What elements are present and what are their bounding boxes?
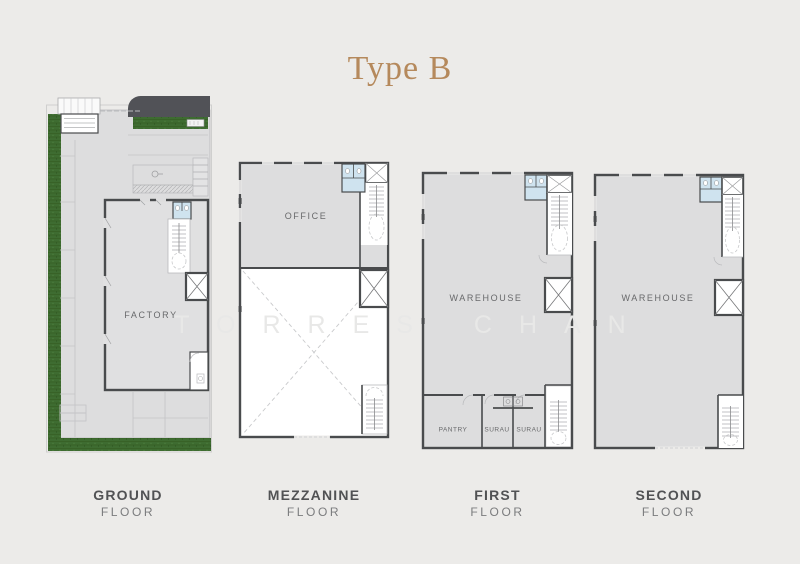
caption-second-floor: SECOND FLOOR: [595, 487, 743, 519]
caption-first-line2: FLOOR: [423, 505, 572, 519]
staircase-lower-icon: [547, 387, 571, 447]
room-label-pantry: PANTRY: [439, 427, 468, 434]
service-shaft-icon: [547, 175, 572, 193]
staircase-lower-icon: [718, 395, 743, 448]
room-label-factory: FACTORY: [124, 310, 177, 320]
toilet-icon: [173, 202, 191, 219]
lift-shaft-icon: [545, 278, 572, 312]
service-shaft-icon: [366, 163, 389, 183]
room-label-surau-right: SURAU: [516, 427, 541, 434]
caption-first-floor: FIRST FLOOR: [423, 487, 572, 519]
toilet-icon: [700, 177, 722, 202]
store-room: [190, 352, 208, 390]
caption-ground-line1: GROUND: [48, 487, 208, 503]
service-shaft-icon: [722, 177, 743, 195]
second-floor-plan: [591, 168, 749, 458]
caption-ground-line2: FLOOR: [48, 505, 208, 519]
mezzanine-floor-plan: [236, 156, 394, 446]
caption-second-line2: FLOOR: [595, 505, 743, 519]
caption-mezzanine-line1: MEZZANINE: [240, 487, 388, 503]
ground-floor-plan: [44, 90, 234, 462]
toilet-icon: [342, 164, 365, 192]
floorplan-sheet: Type B: [0, 0, 800, 564]
page-title: Type B: [0, 50, 800, 88]
room-label-warehouse-second: WAREHOUSE: [621, 293, 694, 303]
caption-second-line1: SECOND: [595, 487, 743, 503]
staircase-lower-icon: [362, 385, 387, 434]
caption-mezzanine-floor: MEZZANINE FLOOR: [240, 487, 388, 519]
staircase-icon: [168, 219, 190, 273]
caption-mezzanine-line2: FLOOR: [240, 505, 388, 519]
lift-shaft-icon: [715, 280, 743, 315]
lift-shaft-icon: [360, 270, 388, 307]
lift-shaft-icon: [186, 273, 208, 300]
caption-first-line1: FIRST: [423, 487, 572, 503]
room-label-surau-left: SURAU: [484, 427, 509, 434]
toilet-icon: [525, 175, 547, 200]
room-label-office: OFFICE: [285, 211, 328, 221]
room-label-warehouse-first: WAREHOUSE: [449, 293, 522, 303]
staircase-icon: [366, 183, 388, 245]
first-floor-plan: [419, 166, 577, 456]
caption-ground-floor: GROUND FLOOR: [48, 487, 208, 519]
